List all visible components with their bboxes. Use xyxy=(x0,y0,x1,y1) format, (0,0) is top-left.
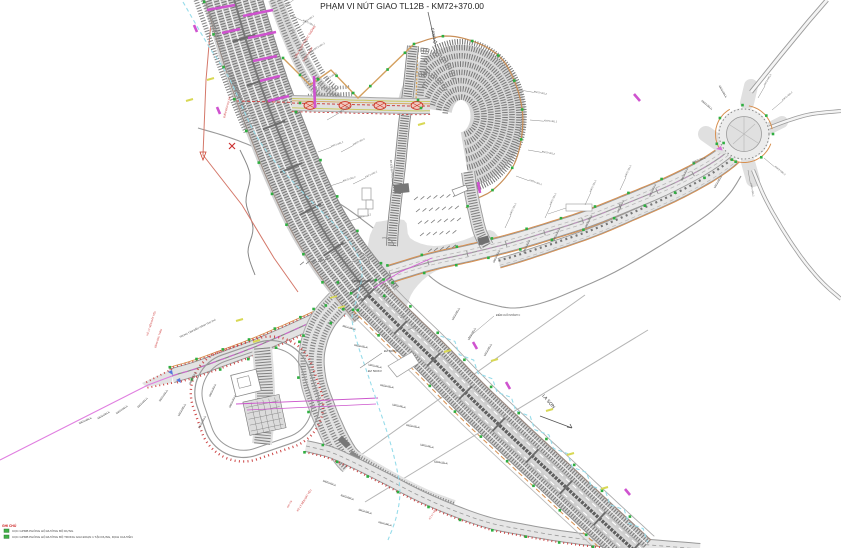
svg-text:ĐIỂM CUỐI NHÁNH C: ĐIỂM CUỐI NHÁNH C xyxy=(496,314,520,317)
svg-text:ĐIỂM ĐẦU NHÁNH C: ĐIỂM ĐẦU NHÁNH C xyxy=(352,280,376,283)
svg-text:ĐZ 500KV: ĐZ 500KV xyxy=(384,349,398,353)
svg-text:PHẠM VI NÚT GIAO TL12B - KM72+: PHẠM VI NÚT GIAO TL12B - KM72+370.00 xyxy=(320,1,484,11)
svg-text:CỌC GPMB PHÒNG HỘ ĐƯỜNG BỘ TRO: CỌC GPMB PHÒNG HỘ ĐƯỜNG BỘ TRONG GIAI ĐO… xyxy=(12,534,133,539)
svg-text:CỌC GPMB PHÒNG HỘ ĐƯỜNG BỘ DỰN: CỌC GPMB PHÒNG HỘ ĐƯỜNG BỘ DỰNG xyxy=(12,528,74,533)
svg-text:ĐZ 500KV: ĐZ 500KV xyxy=(368,369,382,373)
svg-text:GHI CHÚ: GHI CHÚ xyxy=(2,523,17,528)
